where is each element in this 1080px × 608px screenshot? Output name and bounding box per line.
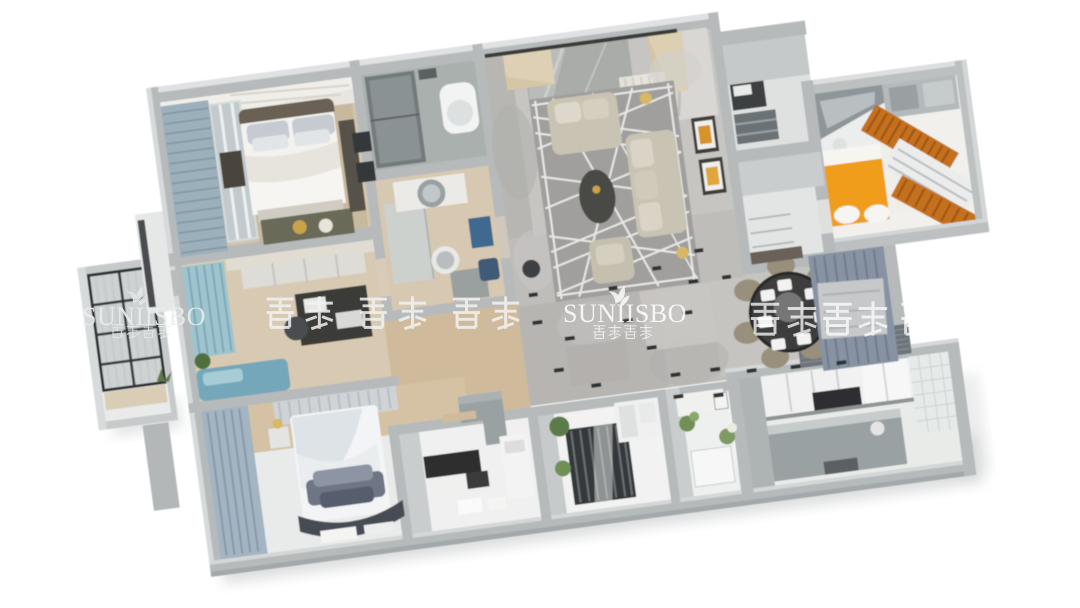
- svg-text:SUNIISBO: SUNIISBO: [82, 302, 206, 331]
